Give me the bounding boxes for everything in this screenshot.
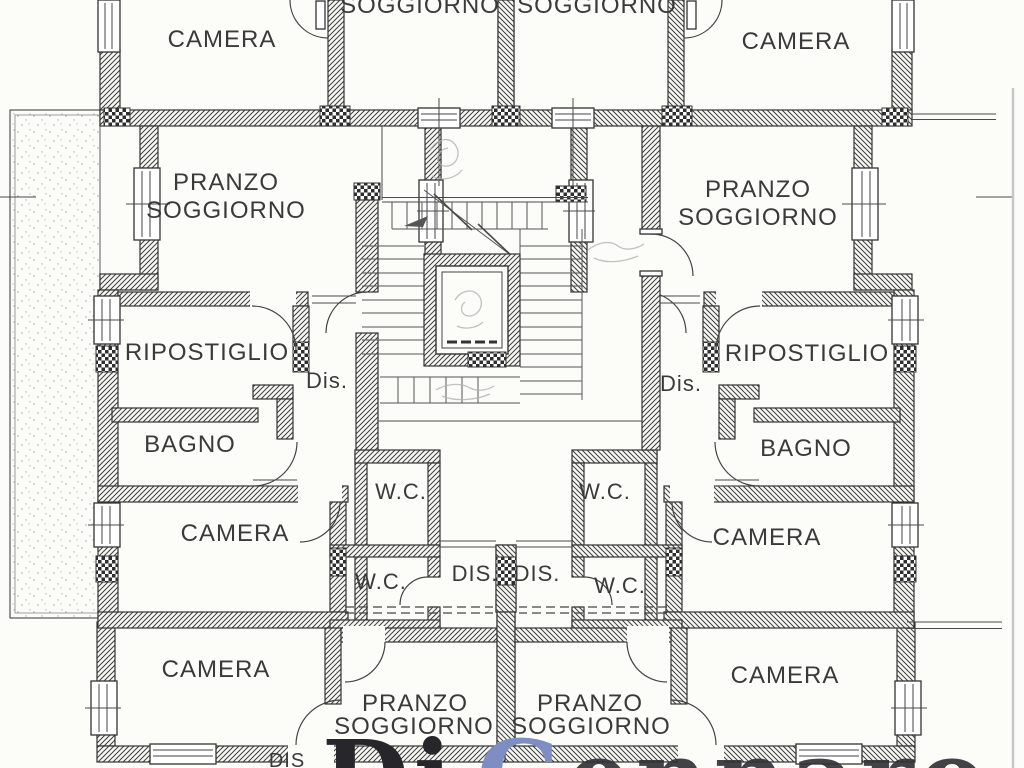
terrace-left bbox=[10, 110, 100, 618]
room-label-camera-top-right: CAMERA bbox=[742, 28, 851, 55]
room-label-soggiorno-top-left: SOGGIORNO bbox=[340, 0, 500, 19]
watermark-part-blue: G bbox=[477, 718, 567, 768]
room-label-soggiorno-top-right: SOGGIORNO bbox=[517, 0, 677, 19]
room-label-pranzo-mid-right-line1: PRANZO bbox=[705, 176, 811, 203]
room-label-bagno-left: BAGNO bbox=[144, 431, 236, 458]
room-label-pranzo-mid-left-line2: SOGGIORNO bbox=[146, 197, 306, 224]
room-label-camera-bottom-left: CAMERA bbox=[162, 656, 271, 683]
watermark-part-gray: ennaro bbox=[567, 718, 990, 768]
room-label-dis-corridor-right: DIS. bbox=[514, 561, 561, 586]
room-label-bagno-right: BAGNO bbox=[760, 435, 852, 462]
room-label-dis-left: Dis. bbox=[306, 368, 348, 393]
room-label-ripostiglio-right: RIPOSTIGLIO bbox=[725, 340, 889, 367]
watermark-part-dark: Di bbox=[322, 718, 457, 768]
room-label-dis-right: Dis. bbox=[660, 371, 702, 396]
room-label-wc-upper-left: W.C. bbox=[375, 479, 427, 504]
room-label-pranzo-mid-left-line1: PRANZO bbox=[173, 169, 279, 196]
room-label-ripostiglio-left: RIPOSTIGLIO bbox=[125, 339, 289, 366]
room-label-pranzo-mid-right-line2: SOGGIORNO bbox=[678, 204, 838, 231]
room-label-wc-lower-left: W.C. bbox=[355, 569, 407, 594]
elevator-shaft bbox=[424, 254, 520, 367]
room-label-wc-lower-right: W.C. bbox=[594, 573, 646, 598]
room-label-dis-bottom-left: DIS bbox=[269, 750, 305, 768]
floor-plan-canvas: CAMERA SOGGIORNO SOGGIORNO CAMERA PRANZO… bbox=[0, 0, 1024, 768]
room-label-camera-top-left: CAMERA bbox=[168, 26, 277, 53]
room-label-camera-bottom-right: CAMERA bbox=[731, 662, 840, 689]
room-label-wc-upper-right: W.C. bbox=[579, 479, 631, 504]
room-label-dis-corridor-left: DIS. bbox=[452, 561, 499, 586]
watermark-text: DiGennaro bbox=[322, 718, 990, 768]
room-label-camera-mid-right: CAMERA bbox=[713, 524, 822, 551]
room-label-camera-mid-left: CAMERA bbox=[181, 520, 290, 547]
